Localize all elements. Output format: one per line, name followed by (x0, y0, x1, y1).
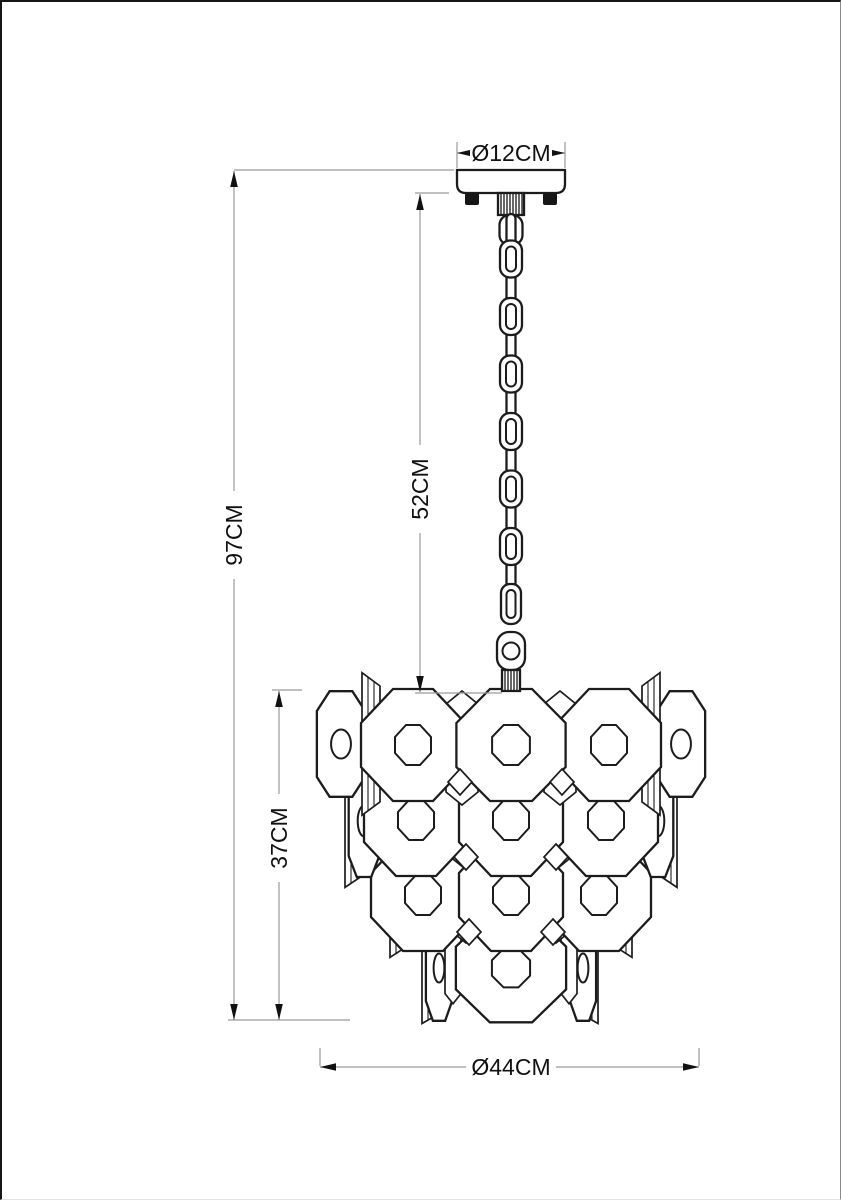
dimension-canopy-diameter: Ø12CM (457, 140, 565, 168)
shade-diameter-label: Ø44CM (471, 1054, 550, 1080)
shade-tier-1 (317, 673, 705, 816)
canopy-foot-right (543, 193, 557, 205)
overall-height-label: 97CM (221, 504, 247, 565)
chain-shackle (497, 632, 525, 670)
canopy-foot-left (465, 193, 479, 205)
dimension-chain-length: 52CM (407, 193, 502, 693)
suspension-chain (497, 214, 525, 691)
shade-height-label: 37CM (266, 807, 292, 868)
chain-end-link (501, 584, 521, 624)
chandelier-dimension-drawing: Ø12CM 97CM 52CM 37CM Ø44CM (2, 2, 841, 1202)
canopy-diameter-label: Ø12CM (471, 140, 550, 166)
dimension-shade-diameter: Ø44CM (320, 1048, 699, 1080)
technical-drawing-sheet: Ø12CM 97CM 52CM 37CM Ø44CM (0, 0, 841, 1200)
chandelier-shade (317, 673, 705, 1024)
chain-length-label: 52CM (407, 458, 433, 519)
shade-stem (502, 670, 520, 691)
dimension-shade-height: 37CM (266, 690, 302, 1020)
